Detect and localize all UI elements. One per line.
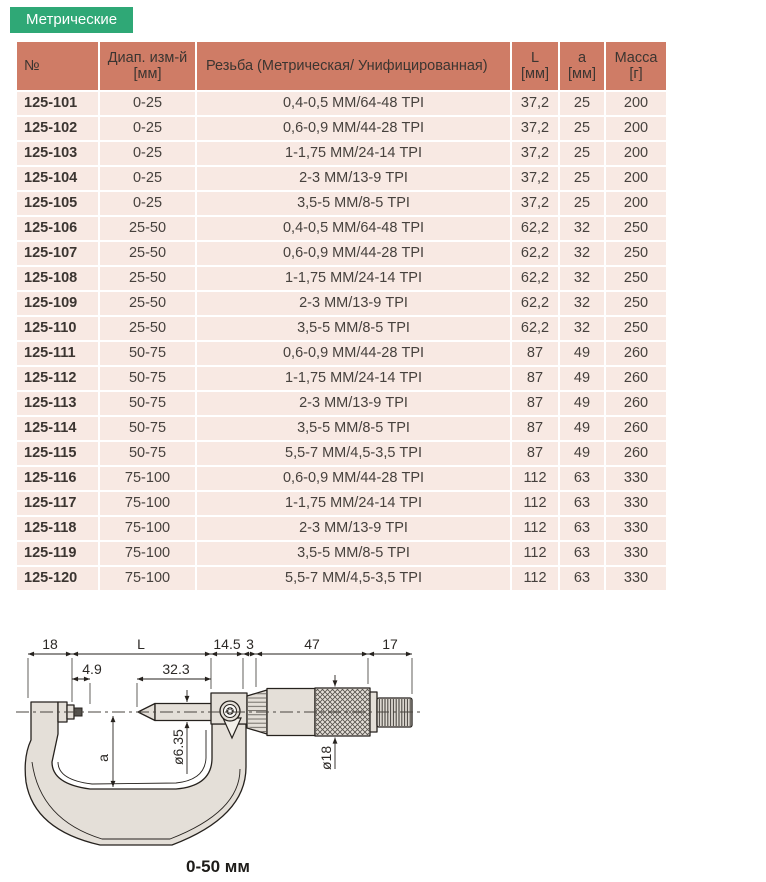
cell-no: 125-109 [17, 292, 98, 315]
cell-range: 0-25 [100, 167, 195, 190]
cell-range: 50-75 [100, 367, 195, 390]
micrometer-diagram: 18 L 14.5 3 47 17 4.9 32.3 a ø6.35 ø18 0… [0, 612, 766, 882]
cell-mass: 260 [606, 417, 666, 440]
col-label-number: № [24, 58, 40, 74]
cell-mass: 200 [606, 142, 666, 165]
cell-L: 62,2 [512, 242, 558, 265]
cell-no: 125-102 [17, 117, 98, 140]
cell-no: 125-114 [17, 417, 98, 440]
cell-mass: 330 [606, 542, 666, 565]
cell-L: 87 [512, 342, 558, 365]
cell-a: 32 [560, 217, 604, 240]
cell-mass: 250 [606, 267, 666, 290]
table-row: 125-12075-1005,5-7 ММ/4,5-3,5 TPI1126333… [17, 567, 666, 590]
cell-a: 32 [560, 317, 604, 340]
cell-mass: 260 [606, 392, 666, 415]
cell-a: 63 [560, 492, 604, 515]
cell-range: 25-50 [100, 242, 195, 265]
cell-no: 125-103 [17, 142, 98, 165]
cell-thread: 0,4-0,5 ММ/64-48 TPI [197, 217, 510, 240]
cell-thread: 2-3 ММ/13-9 TPI [197, 167, 510, 190]
cell-range: 50-75 [100, 342, 195, 365]
cell-thread: 5,5-7 ММ/4,5-3,5 TPI [197, 442, 510, 465]
cell-mass: 200 [606, 92, 666, 115]
dim-label-14-5: 14.5 [213, 636, 240, 652]
cell-L: 87 [512, 442, 558, 465]
col-label-range: Диап. изм-й [100, 50, 195, 66]
cell-no: 125-105 [17, 192, 98, 215]
cell-a: 49 [560, 342, 604, 365]
cell-range: 50-75 [100, 442, 195, 465]
cell-range: 0-25 [100, 192, 195, 215]
table-row: 125-10725-500,6-0,9 ММ/44-28 TPI62,23225… [17, 242, 666, 265]
col-unit-a: [мм] [560, 66, 604, 82]
table-row: 125-11150-750,6-0,9 ММ/44-28 TPI8749260 [17, 342, 666, 365]
cell-range: 50-75 [100, 392, 195, 415]
cell-mass: 250 [606, 317, 666, 340]
cell-thread: 1-1,75 ММ/24-14 TPI [197, 142, 510, 165]
col-header-L: L[мм] [512, 42, 558, 90]
col-header-mass: Масса[г] [606, 42, 666, 90]
cell-thread: 3,5-5 ММ/8-5 TPI [197, 417, 510, 440]
cell-a: 49 [560, 367, 604, 390]
cell-mass: 250 [606, 217, 666, 240]
cell-thread: 0,6-0,9 ММ/44-28 TPI [197, 467, 510, 490]
cell-mass: 260 [606, 442, 666, 465]
cell-no: 125-108 [17, 267, 98, 290]
cell-range: 0-25 [100, 142, 195, 165]
cell-range: 75-100 [100, 567, 195, 590]
cell-L: 37,2 [512, 92, 558, 115]
col-label-a: a [560, 50, 604, 66]
cell-no: 125-116 [17, 467, 98, 490]
cell-no: 125-106 [17, 217, 98, 240]
cell-range: 25-50 [100, 217, 195, 240]
col-header-range: Диап. изм-й[мм] [100, 42, 195, 90]
cell-mass: 330 [606, 517, 666, 540]
table-row: 125-11025-503,5-5 ММ/8-5 TPI62,232250 [17, 317, 666, 340]
cell-L: 62,2 [512, 317, 558, 340]
cell-no: 125-101 [17, 92, 98, 115]
table-row: 125-11675-1000,6-0,9 ММ/44-28 TPI1126333… [17, 467, 666, 490]
cell-a: 25 [560, 192, 604, 215]
table-body: 125-1010-250,4-0,5 ММ/64-48 TPI37,225200… [17, 92, 666, 590]
cell-range: 50-75 [100, 417, 195, 440]
cell-a: 25 [560, 142, 604, 165]
cell-a: 32 [560, 292, 604, 315]
cell-mass: 330 [606, 567, 666, 590]
table-row: 125-11450-753,5-5 ММ/8-5 TPI8749260 [17, 417, 666, 440]
table-row: 125-1030-251-1,75 ММ/24-14 TPI37,225200 [17, 142, 666, 165]
cell-thread: 3,5-5 ММ/8-5 TPI [197, 317, 510, 340]
cell-mass: 260 [606, 367, 666, 390]
dim-label-4-9: 4.9 [82, 661, 102, 677]
cell-range: 0-25 [100, 92, 195, 115]
col-unit-L: [мм] [512, 66, 558, 82]
ratchet-lines [378, 699, 411, 726]
cell-no: 125-113 [17, 392, 98, 415]
cell-a: 49 [560, 392, 604, 415]
cell-L: 37,2 [512, 167, 558, 190]
cell-mass: 200 [606, 192, 666, 215]
cell-L: 112 [512, 517, 558, 540]
cell-range: 0-25 [100, 117, 195, 140]
cell-a: 63 [560, 517, 604, 540]
col-label-mass: Масса [606, 50, 666, 66]
spec-table: № Диап. изм-й[мм] Резьба (Метрическая/ У… [15, 40, 668, 592]
cell-no: 125-115 [17, 442, 98, 465]
table-row: 125-10825-501-1,75 ММ/24-14 TPI62,232250 [17, 267, 666, 290]
cell-L: 37,2 [512, 192, 558, 215]
spindle [138, 704, 212, 721]
col-label-L: L [512, 50, 558, 66]
cell-thread: 3,5-5 ММ/8-5 TPI [197, 542, 510, 565]
cell-thread: 2-3 ММ/13-9 TPI [197, 392, 510, 415]
cell-thread: 0,4-0,5 ММ/64-48 TPI [197, 92, 510, 115]
cell-L: 87 [512, 417, 558, 440]
cell-thread: 5,5-7 ММ/4,5-3,5 TPI [197, 567, 510, 590]
cell-L: 37,2 [512, 117, 558, 140]
col-header-thread: Резьба (Метрическая/ Унифицированная) [197, 42, 510, 90]
table-row: 125-1040-252-3 ММ/13-9 TPI37,225200 [17, 167, 666, 190]
cell-no: 125-107 [17, 242, 98, 265]
col-label-thread: Резьба (Метрическая/ Унифицированная) [206, 58, 488, 74]
cell-a: 63 [560, 467, 604, 490]
table-row: 125-11975-1003,5-5 ММ/8-5 TPI11263330 [17, 542, 666, 565]
cell-L: 37,2 [512, 142, 558, 165]
cell-no: 125-104 [17, 167, 98, 190]
table-header: № Диап. изм-й[мм] Резьба (Метрическая/ У… [17, 42, 666, 90]
cell-thread: 1-1,75 ММ/24-14 TPI [197, 267, 510, 290]
header-row: № Диап. изм-й[мм] Резьба (Метрическая/ У… [17, 42, 666, 90]
dim-label-L: L [137, 636, 145, 652]
cell-mass: 200 [606, 167, 666, 190]
dim-label-3: 3 [246, 636, 254, 652]
cell-mass: 250 [606, 292, 666, 315]
cell-mass: 330 [606, 467, 666, 490]
cell-thread: 3,5-5 ММ/8-5 TPI [197, 192, 510, 215]
cell-range: 75-100 [100, 517, 195, 540]
dim-label-a: a [95, 754, 111, 762]
cell-a: 63 [560, 567, 604, 590]
cell-no: 125-118 [17, 517, 98, 540]
cell-range: 25-50 [100, 317, 195, 340]
cell-L: 112 [512, 542, 558, 565]
cell-mass: 330 [606, 492, 666, 515]
cell-thread: 2-3 ММ/13-9 TPI [197, 517, 510, 540]
cell-a: 49 [560, 442, 604, 465]
table-row: 125-1010-250,4-0,5 ММ/64-48 TPI37,225200 [17, 92, 666, 115]
cell-L: 87 [512, 392, 558, 415]
cell-no: 125-110 [17, 317, 98, 340]
cell-thread: 1-1,75 ММ/24-14 TPI [197, 367, 510, 390]
cell-thread: 0,6-0,9 ММ/44-28 TPI [197, 242, 510, 265]
cell-L: 112 [512, 492, 558, 515]
col-unit-mass: [г] [606, 66, 666, 82]
table-row: 125-1050-253,5-5 ММ/8-5 TPI37,225200 [17, 192, 666, 215]
cell-range: 75-100 [100, 492, 195, 515]
cell-mass: 260 [606, 342, 666, 365]
cell-a: 25 [560, 117, 604, 140]
cell-L: 112 [512, 567, 558, 590]
cell-no: 125-120 [17, 567, 98, 590]
col-header-a: a[мм] [560, 42, 604, 90]
table-row: 125-10625-500,4-0,5 ММ/64-48 TPI62,23225… [17, 217, 666, 240]
dim-label-d18: ø18 [318, 746, 334, 770]
cell-thread: 1-1,75 ММ/24-14 TPI [197, 492, 510, 515]
dim-label-d6-35: ø6.35 [170, 729, 186, 765]
cell-thread: 2-3 ММ/13-9 TPI [197, 292, 510, 315]
cell-no: 125-119 [17, 542, 98, 565]
table-row: 125-11250-751-1,75 ММ/24-14 TPI8749260 [17, 367, 666, 390]
cell-a: 25 [560, 167, 604, 190]
cell-thread: 0,6-0,9 ММ/44-28 TPI [197, 342, 510, 365]
cell-no: 125-111 [17, 342, 98, 365]
dim-label-17: 17 [382, 636, 398, 652]
dim-label-18: 18 [42, 636, 58, 652]
dim-label-47: 47 [304, 636, 320, 652]
cell-a: 49 [560, 417, 604, 440]
cell-L: 62,2 [512, 292, 558, 315]
cell-L: 62,2 [512, 267, 558, 290]
table-row: 125-11775-1001-1,75 ММ/24-14 TPI11263330 [17, 492, 666, 515]
ratchet-stop [377, 698, 412, 727]
cell-a: 32 [560, 242, 604, 265]
cell-no: 125-112 [17, 367, 98, 390]
cell-L: 87 [512, 367, 558, 390]
cell-no: 125-117 [17, 492, 98, 515]
cell-range: 25-50 [100, 292, 195, 315]
cell-L: 62,2 [512, 217, 558, 240]
cell-L: 112 [512, 467, 558, 490]
cell-range: 75-100 [100, 542, 195, 565]
cell-a: 25 [560, 92, 604, 115]
dim-label-32-3: 32.3 [162, 661, 189, 677]
diagram-caption: 0-50 мм [186, 857, 250, 876]
col-unit-range: [мм] [100, 66, 195, 82]
cell-a: 63 [560, 542, 604, 565]
cell-mass: 200 [606, 117, 666, 140]
col-header-number: № [17, 42, 98, 90]
table-row: 125-11875-1002-3 ММ/13-9 TPI11263330 [17, 517, 666, 540]
table-row: 125-10925-502-3 ММ/13-9 TPI62,232250 [17, 292, 666, 315]
table-row: 125-11550-755,5-7 ММ/4,5-3,5 TPI8749260 [17, 442, 666, 465]
section-tab-metric: Метрические [10, 7, 133, 33]
cell-thread: 0,6-0,9 ММ/44-28 TPI [197, 117, 510, 140]
cell-mass: 250 [606, 242, 666, 265]
table-row: 125-11350-752-3 ММ/13-9 TPI8749260 [17, 392, 666, 415]
cell-range: 75-100 [100, 467, 195, 490]
table-row: 125-1020-250,6-0,9 ММ/44-28 TPI37,225200 [17, 117, 666, 140]
cell-a: 32 [560, 267, 604, 290]
cell-range: 25-50 [100, 267, 195, 290]
